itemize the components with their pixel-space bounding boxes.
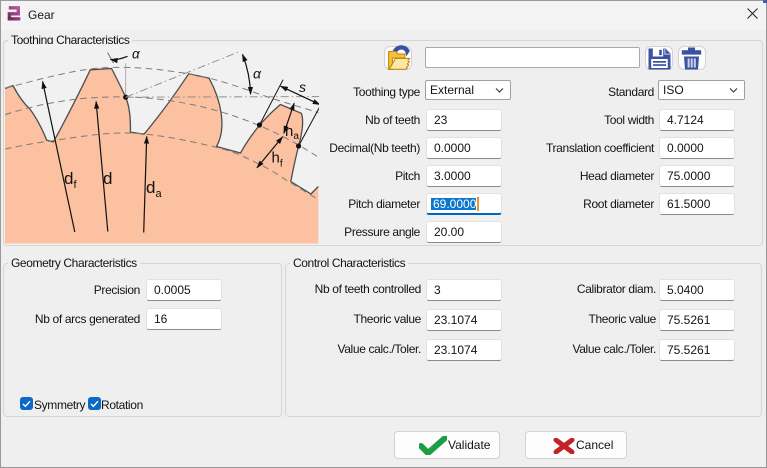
svg-text:α: α xyxy=(253,66,262,82)
svg-text:d: d xyxy=(103,169,112,188)
svg-text:α: α xyxy=(132,47,141,62)
